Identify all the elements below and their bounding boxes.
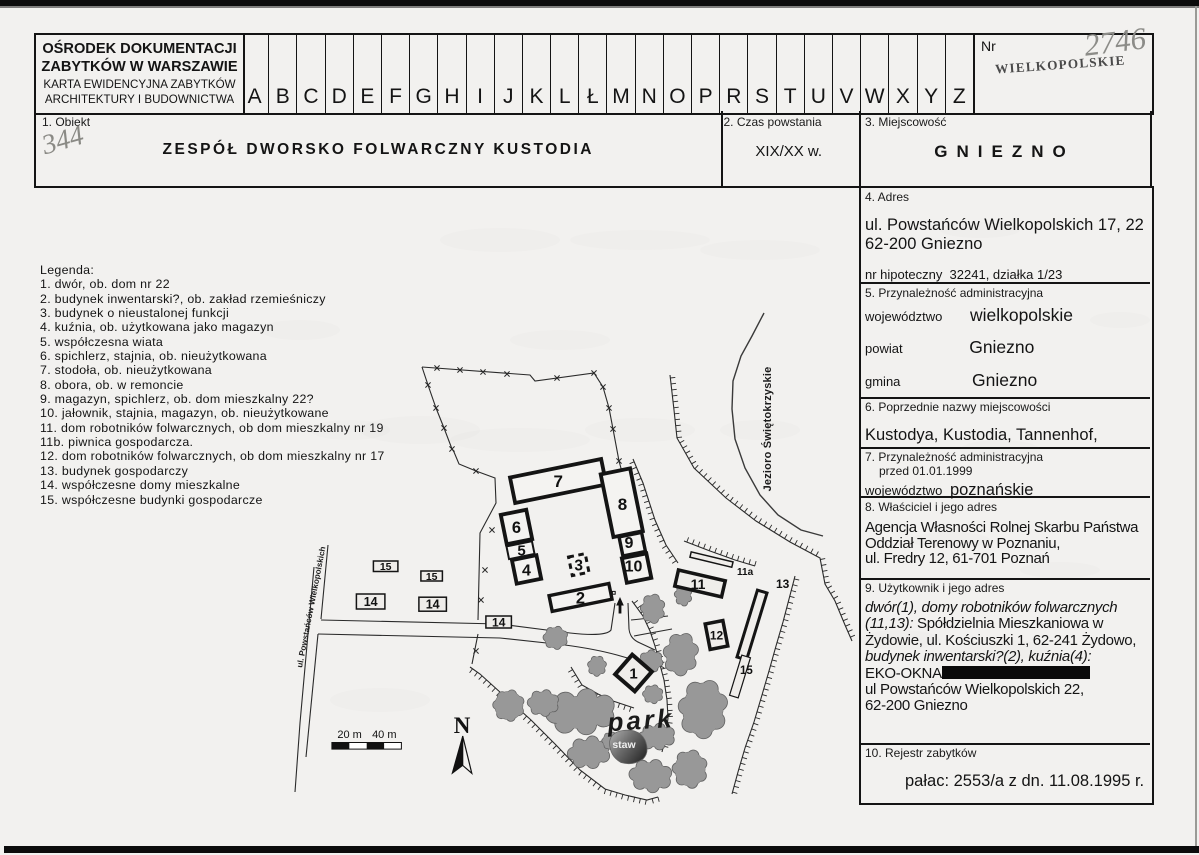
svg-text:7: 7 <box>553 472 562 491</box>
svg-text:4: 4 <box>522 562 531 579</box>
svg-text:11a: 11a <box>737 567 754 578</box>
svg-text:3: 3 <box>574 557 583 574</box>
svg-text:park: park <box>606 703 676 738</box>
svg-text:6: 6 <box>512 519 521 537</box>
svg-text:1: 1 <box>629 665 637 682</box>
svg-text:10: 10 <box>625 558 643 575</box>
svg-text:N: N <box>454 713 471 738</box>
svg-text:14: 14 <box>492 615 506 629</box>
svg-text:15: 15 <box>380 561 392 573</box>
svg-text:9: 9 <box>625 535 634 552</box>
svg-text:14: 14 <box>364 595 378 609</box>
svg-text:8: 8 <box>618 495 627 514</box>
svg-text:2: 2 <box>576 589 585 607</box>
svg-text:20 m: 20 m <box>337 729 361 741</box>
svg-text:15: 15 <box>740 665 753 677</box>
svg-text:14: 14 <box>426 598 440 612</box>
svg-text:Jezioro Świętokrzyskie: Jezioro Świętokrzyskie <box>761 367 774 492</box>
svg-text:40 m: 40 m <box>372 729 396 741</box>
svg-text:15: 15 <box>426 571 438 583</box>
svg-text:13: 13 <box>776 577 790 591</box>
svg-text:staw: staw <box>612 739 636 751</box>
svg-text:11: 11 <box>691 576 706 592</box>
svg-text:12: 12 <box>710 628 724 642</box>
